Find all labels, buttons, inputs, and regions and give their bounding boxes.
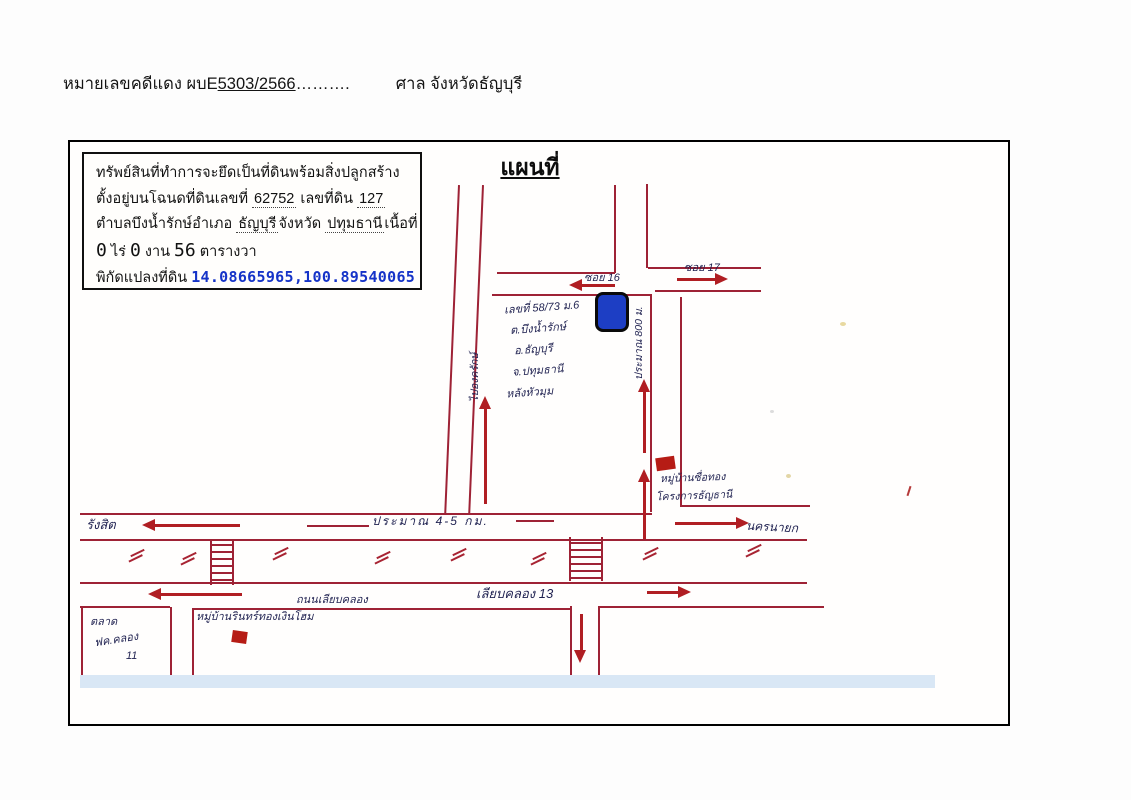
address-line: ต.บึงน้ำรักษ์ (509, 317, 566, 339)
road-line (655, 290, 761, 292)
area-line: 0 ไร่ 0 งาน 56 ตารางวา (96, 238, 408, 266)
village1-label: หมู่บ้านซื่อทอง (660, 468, 726, 487)
side-street-line (192, 609, 194, 679)
highway-edge-north (80, 513, 652, 515)
case-number-value: 5303/2566 (218, 75, 296, 93)
coordinates-line: พิกัดแปลงที่ดิน 14.08665965,100.89540065 (96, 265, 408, 292)
scan-artifact-strip (80, 675, 935, 688)
median-hatch (747, 544, 761, 552)
road-line (614, 185, 616, 273)
rangsit-label: รังสิต (86, 514, 116, 535)
land-number: 127 (357, 191, 385, 208)
ongkharak-label: ไปองครักษ์ (466, 330, 483, 402)
nakhonnayok-arrow-shaft (675, 522, 737, 525)
property-info-box: ทรัพย์สินที่ทำการจะยึดเป็นที่ดินพร้อมสิ่… (82, 152, 422, 290)
case-header: หมายเลขคดีแดง ผบE5303/2566……….ศาล จังหวั… (63, 71, 522, 97)
rai-value: 0 (96, 240, 107, 261)
map-frame: ทรัพย์สินที่ทำการจะยึดเป็นที่ดินพร้อมสิ่… (68, 140, 1010, 726)
market-label-line: 11 (126, 650, 137, 662)
scan-speck (907, 486, 912, 496)
land-number-label: เลขที่ดิน (300, 191, 353, 207)
address-line: จ.ปทุมธานี (511, 359, 564, 381)
dotted-leader: ………. (296, 75, 350, 93)
crossing-ladder (210, 539, 234, 585)
rai-label: ไร่ (111, 244, 126, 260)
province-label: จังหวัด (278, 216, 321, 232)
side-street-line (170, 607, 172, 677)
median-hatch (376, 551, 390, 559)
amphoe: ธัญบุรี (236, 216, 278, 233)
liap-khlong-road-label: ถนนเลียบคลอง (296, 590, 368, 608)
south-arrow-icon (574, 650, 586, 663)
scanned-court-map-document: หมายเลขคดีแดง ผบE5303/2566……….ศาล จังหวั… (0, 0, 1131, 800)
market-label-line: ฟค.คลอง (93, 627, 140, 652)
ngan-value: 0 (130, 240, 141, 261)
median-hatch (644, 547, 658, 555)
block-edge (80, 606, 170, 608)
soi16-label: ซอย 16 (584, 268, 620, 286)
wa-label: ตารางวา (200, 244, 257, 260)
eastbound-arrow-icon (678, 586, 691, 598)
court-name: ศาล จังหวัดธัญบุรี (396, 75, 522, 93)
soi17-arrow-shaft (677, 278, 717, 281)
property-description-line: ทรัพย์สินที่ทำการจะยึดเป็นที่ดินพร้อมสิ่… (96, 161, 408, 187)
distance-dash (307, 525, 369, 527)
liap-khlong13-label: เลียบคลอง 13 (476, 583, 553, 604)
median-hatch (182, 552, 196, 560)
wa-value: 56 (174, 240, 196, 261)
ngan-label: งาน (145, 244, 170, 260)
road-line (650, 294, 652, 512)
westbound-arrow-shaft (160, 593, 242, 596)
ongkharak-arrow-shaft (484, 408, 487, 504)
median-hatch (532, 552, 546, 560)
road-line (646, 184, 648, 268)
scan-speck (770, 410, 774, 413)
rangsit-arrow-shaft (154, 524, 240, 527)
median-hatch (130, 549, 144, 557)
market-label-line: ตลาด (90, 612, 117, 630)
side-street-line (570, 606, 572, 676)
distance-4-5km-label: ประมาณ 4-5 กม. (372, 512, 489, 531)
tambon: ตำบลบึงน้ำรักษ์ (96, 216, 192, 232)
province: ปทุมธานี (325, 216, 384, 233)
parcel-marker (595, 292, 629, 332)
location-line: ตำบลบึงน้ำรักษ์อำเภอ ธัญบุรีจังหวัด ปทุม… (96, 212, 408, 238)
block-edge (81, 607, 83, 677)
scan-speck (840, 322, 846, 326)
area-label: เนื้อที่ (384, 216, 417, 232)
south-arrow-shaft (580, 614, 583, 652)
side-street-line (598, 606, 600, 676)
distance-800m-label: ประมาณ 800 ม. (630, 284, 647, 380)
soi17-label: ซอย 17 (684, 258, 720, 276)
block-edge (598, 606, 824, 608)
building-marker (231, 630, 248, 644)
median-hatch (452, 548, 466, 556)
highway-lane-line (80, 582, 807, 584)
amphoe-label: อำเภอ (192, 216, 232, 232)
distance-dash (516, 520, 554, 522)
crossing-ladder (569, 537, 603, 581)
address-line: อ.ธัญบุรี (513, 339, 553, 360)
road-line (444, 185, 460, 515)
eastbound-arrow-shaft (647, 591, 679, 594)
deed-number: 62752 (252, 191, 296, 208)
address-line: เลขที่ 58/73 ม.6 (503, 295, 579, 318)
coordinates-label: พิกัดแปลงที่ดิน (96, 270, 187, 286)
highway-edge-north (680, 505, 810, 507)
nakhonnayok-label: นครนายก (746, 517, 799, 539)
village2-label: หมู่บ้านรินทร์ทองเงินโฮม (196, 607, 314, 625)
coordinates-value: 14.08665965,100.89540065 (191, 268, 415, 286)
map-title: แผนที่ (470, 150, 590, 186)
address-line: หลังหัวมุม (505, 381, 553, 402)
case-number-label: หมายเลขคดีแดง ผบE (63, 75, 218, 93)
village1-project-label: โครงการธัญธานี (656, 486, 733, 506)
deed-line: ตั้งอยู่บนโฉนดที่ดินเลขที่ 62752 เลขที่ด… (96, 187, 408, 213)
north-arrow-shaft (643, 391, 646, 453)
highway-lane-line (80, 539, 807, 541)
median-hatch (274, 547, 288, 555)
north-arrow-shaft (643, 481, 646, 539)
scan-speck (786, 474, 791, 478)
deed-label: ตั้งอยู่บนโฉนดที่ดินเลขที่ (96, 191, 248, 207)
